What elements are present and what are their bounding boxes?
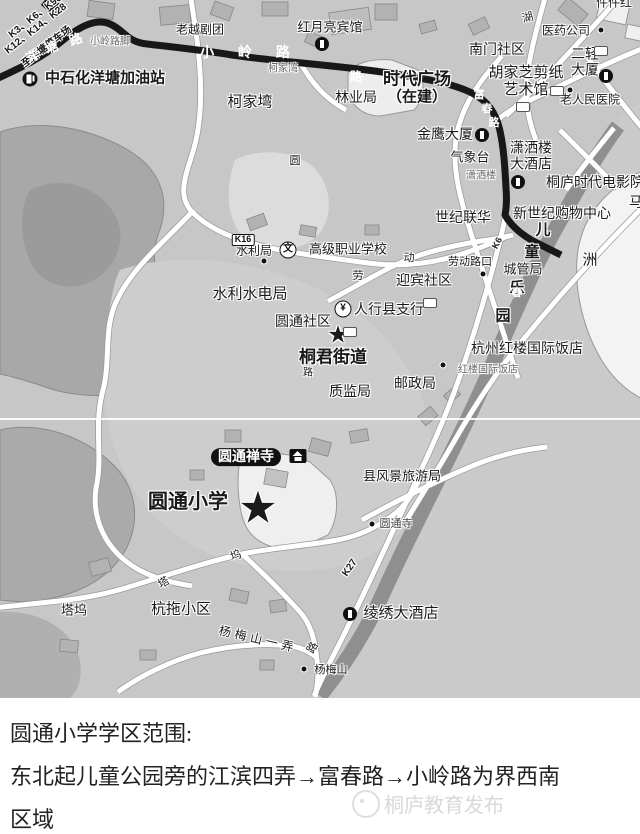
road-char-dong: 动 — [404, 252, 415, 264]
xiaosalou-hotel: 潇洒楼 大酒店 — [510, 140, 552, 171]
road-char-lu-fuchun: 路 — [489, 117, 500, 129]
shuiliju: 水利局 — [236, 244, 272, 257]
xiaosalou-stop: 潇洒楼 — [466, 170, 496, 181]
yuantong-community: 圆通社区 — [275, 314, 331, 330]
bus-stop-dot-1 — [599, 28, 604, 33]
yuantongsi-stop: 圆通寺 — [380, 518, 413, 530]
xiaoling-lujiao: 小岭路脚 — [90, 36, 130, 47]
road-char-hu: 湖 — [521, 11, 535, 26]
kids-park-char-tong: 童 — [524, 245, 539, 262]
youzhengju: 邮政局 — [394, 376, 436, 392]
weather-station: 气象台 — [450, 151, 489, 166]
hotel-icon-erqing — [599, 69, 613, 83]
caption-line-2: 东北起儿童公园旁的江滨四弄→富春路→小岭路为界西南 — [10, 755, 630, 798]
road-char-chun: 春 — [482, 103, 493, 115]
kejiawan-stop: 柯家湾 — [268, 63, 298, 74]
nanmen-community: 南门社区 — [469, 42, 525, 58]
road-char-lu-yangtang: 路 — [67, 31, 84, 49]
bus-stop-dot-2 — [568, 88, 573, 93]
shidai-plaza: 时代广场 — [383, 69, 451, 88]
road-char-wu: 坞 — [229, 548, 244, 563]
road-char-ta: 塔 — [156, 575, 172, 591]
bus-stop-dot-4 — [481, 272, 486, 277]
badge-route-2 — [550, 86, 564, 96]
route-k6: K6 — [490, 236, 504, 251]
partial-char-ma: 马 — [629, 195, 640, 211]
lingxiu-hotel: 绫绣大酒店 — [363, 606, 438, 623]
partial-label-top-right: 件件红 — [596, 0, 632, 10]
tongjun-jiedao: 桐君街道 — [299, 347, 367, 366]
road-char-chun-south: 春 — [512, 287, 523, 299]
kejiawan-area: 柯家塆 — [227, 95, 272, 112]
hotel-icon-hongyueliang — [315, 37, 329, 51]
badge-route-4 — [423, 298, 437, 308]
star-yuantong-school: ★ — [238, 483, 277, 532]
zhijianju: 质监局 — [329, 384, 371, 400]
jinying-tower: 金鹰大厦 — [417, 127, 473, 143]
yingbin-community: 迎宾社区 — [396, 273, 452, 289]
road-char-lu-mid: 路 — [303, 367, 313, 378]
watermark: 桐庐教育发布 — [352, 789, 504, 818]
sinopec-yangtang-gas: 中石化洋塘加油站 — [45, 71, 165, 88]
tawu-area: 塔坞 — [61, 604, 87, 619]
screenshot: K3、K6、K9、KK12、K14、K28至洋塘停车场洋塘路小岭路脚老越剧团小 … — [0, 0, 640, 834]
laodong-lukou-stop: 劳动路口 — [448, 256, 492, 268]
map-image: K3、K6、K9、KK12、K14、K28至洋塘停车场洋塘路小岭路脚老越剧团小 … — [0, 0, 640, 698]
lao-yue-ju-tuan: 老越剧团 — [176, 23, 224, 36]
bank-icon: ¥ — [335, 301, 352, 318]
temple-icon — [290, 449, 307, 463]
yuantong-chansi: 圆通禅寺 — [211, 448, 281, 466]
road-char-yuan: 圆 — [290, 155, 301, 167]
hotel-icon-jinying — [475, 128, 489, 142]
road-char-lu-south: 路 — [305, 640, 321, 656]
shuili-shuidianju: 水利水电局 — [212, 287, 287, 304]
yuantong-primary-school: 圆通小学 — [148, 491, 228, 513]
bus-stop-dot-6 — [370, 522, 375, 527]
road-yangmeishan-yinong: 杨梅山一弄 — [218, 624, 299, 655]
tonglu-shidai-cinema: 桐庐时代电影院 — [546, 175, 640, 191]
bus-stop-dot-5 — [441, 363, 446, 368]
shiji-lianhua: 世纪联华 — [435, 210, 491, 226]
route-k27: K27 — [340, 557, 360, 578]
road-char-fu: 富 — [474, 89, 485, 101]
kids-park-char-yuan: 园 — [495, 309, 510, 326]
pboc-county-branch: 人行县支行 — [354, 302, 424, 318]
badge-route-1 — [516, 102, 530, 112]
chengguanju: 城管局 — [503, 263, 542, 278]
school-icon: 文 — [280, 242, 297, 259]
vocational-school: 高级职业学校 — [309, 243, 387, 258]
map-labels-layer: K3、K6、K9、KK12、K14、K28至洋塘停车场洋塘路小岭路脚老越剧团小 … — [0, 0, 640, 698]
honglou-hotel-stop: 红楼国际饭店 — [458, 364, 518, 375]
caption: 圆通小学学区范围: 东北起儿童公园旁的江滨四弄→富春路→小岭路为界西南 区域 — [10, 712, 630, 834]
hangtuo-xiaoqu: 杭拖小区 — [151, 602, 211, 619]
watermark-text: 桐庐教育发布 — [384, 789, 504, 818]
islet-zhou: 洲 — [582, 253, 597, 270]
forestry-bureau: 林业局 — [335, 90, 377, 106]
old-peoples-hospital: 老人民医院 — [560, 93, 620, 106]
gas-station-icon — [23, 72, 38, 87]
hangzhou-honglou-hotel: 杭州红楼国际饭店 — [471, 341, 583, 357]
road-xiaoling: 小 岭 路 — [200, 45, 300, 61]
hotel-icon-xiaosalou — [511, 175, 525, 189]
bus-stop-dot-3 — [262, 259, 267, 264]
hotel-icon-lingxiu — [343, 607, 357, 621]
caption-line-1: 圆通小学学区范围: — [10, 712, 630, 755]
caption-line-3: 区域 — [10, 798, 630, 834]
pharma-company: 医药公司 — [542, 24, 590, 37]
hongyueliang-hotel: 红月亮宾馆 — [297, 21, 362, 36]
bus-stop-dot-7 — [302, 667, 307, 672]
under-construction: （在建） — [387, 90, 447, 107]
badge-route-5 — [343, 327, 357, 337]
road-char-lu-top: 路 — [350, 70, 362, 83]
yangmeishan-stop: 杨梅山 — [315, 664, 348, 676]
xinshiji-mall: 新世纪购物中心 — [513, 206, 611, 222]
county-tourism-bureau: 县风景旅游局 — [363, 470, 441, 485]
road-char-lao: 劳 — [353, 270, 364, 282]
badge-k16: K16 — [232, 234, 255, 246]
watermark-logo-icon — [352, 790, 380, 818]
badge-route-3 — [594, 46, 608, 56]
kids-park-char-er: 儿 — [535, 223, 550, 240]
